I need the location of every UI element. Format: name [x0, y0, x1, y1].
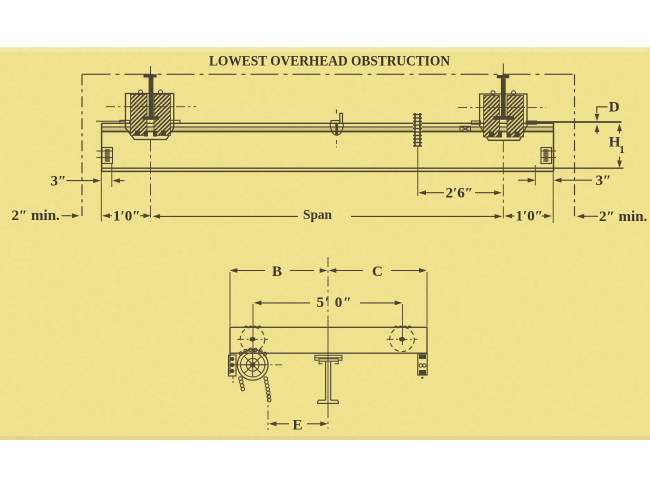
- svg-text:3″: 3″: [51, 173, 67, 189]
- svg-text:1′0″: 1′0″: [113, 208, 141, 224]
- svg-text:1′0″: 1′0″: [516, 209, 544, 225]
- svg-text:D: D: [609, 99, 620, 115]
- svg-text:5′ 0″: 5′ 0″: [317, 295, 352, 311]
- svg-text:2″ min.: 2″ min.: [12, 208, 61, 224]
- svg-text:E: E: [293, 418, 303, 434]
- svg-text:2″ min.: 2″ min.: [599, 209, 648, 225]
- svg-text:LOWEST OVERHEAD OBSTRUCTION: LOWEST OVERHEAD OBSTRUCTION: [209, 53, 450, 69]
- svg-text:1: 1: [619, 144, 625, 156]
- svg-text:C: C: [372, 264, 383, 280]
- svg-text:B: B: [272, 264, 282, 280]
- svg-text:Span: Span: [303, 208, 332, 223]
- svg-text:3″: 3″: [596, 173, 612, 189]
- svg-text:2′6″: 2′6″: [446, 185, 474, 201]
